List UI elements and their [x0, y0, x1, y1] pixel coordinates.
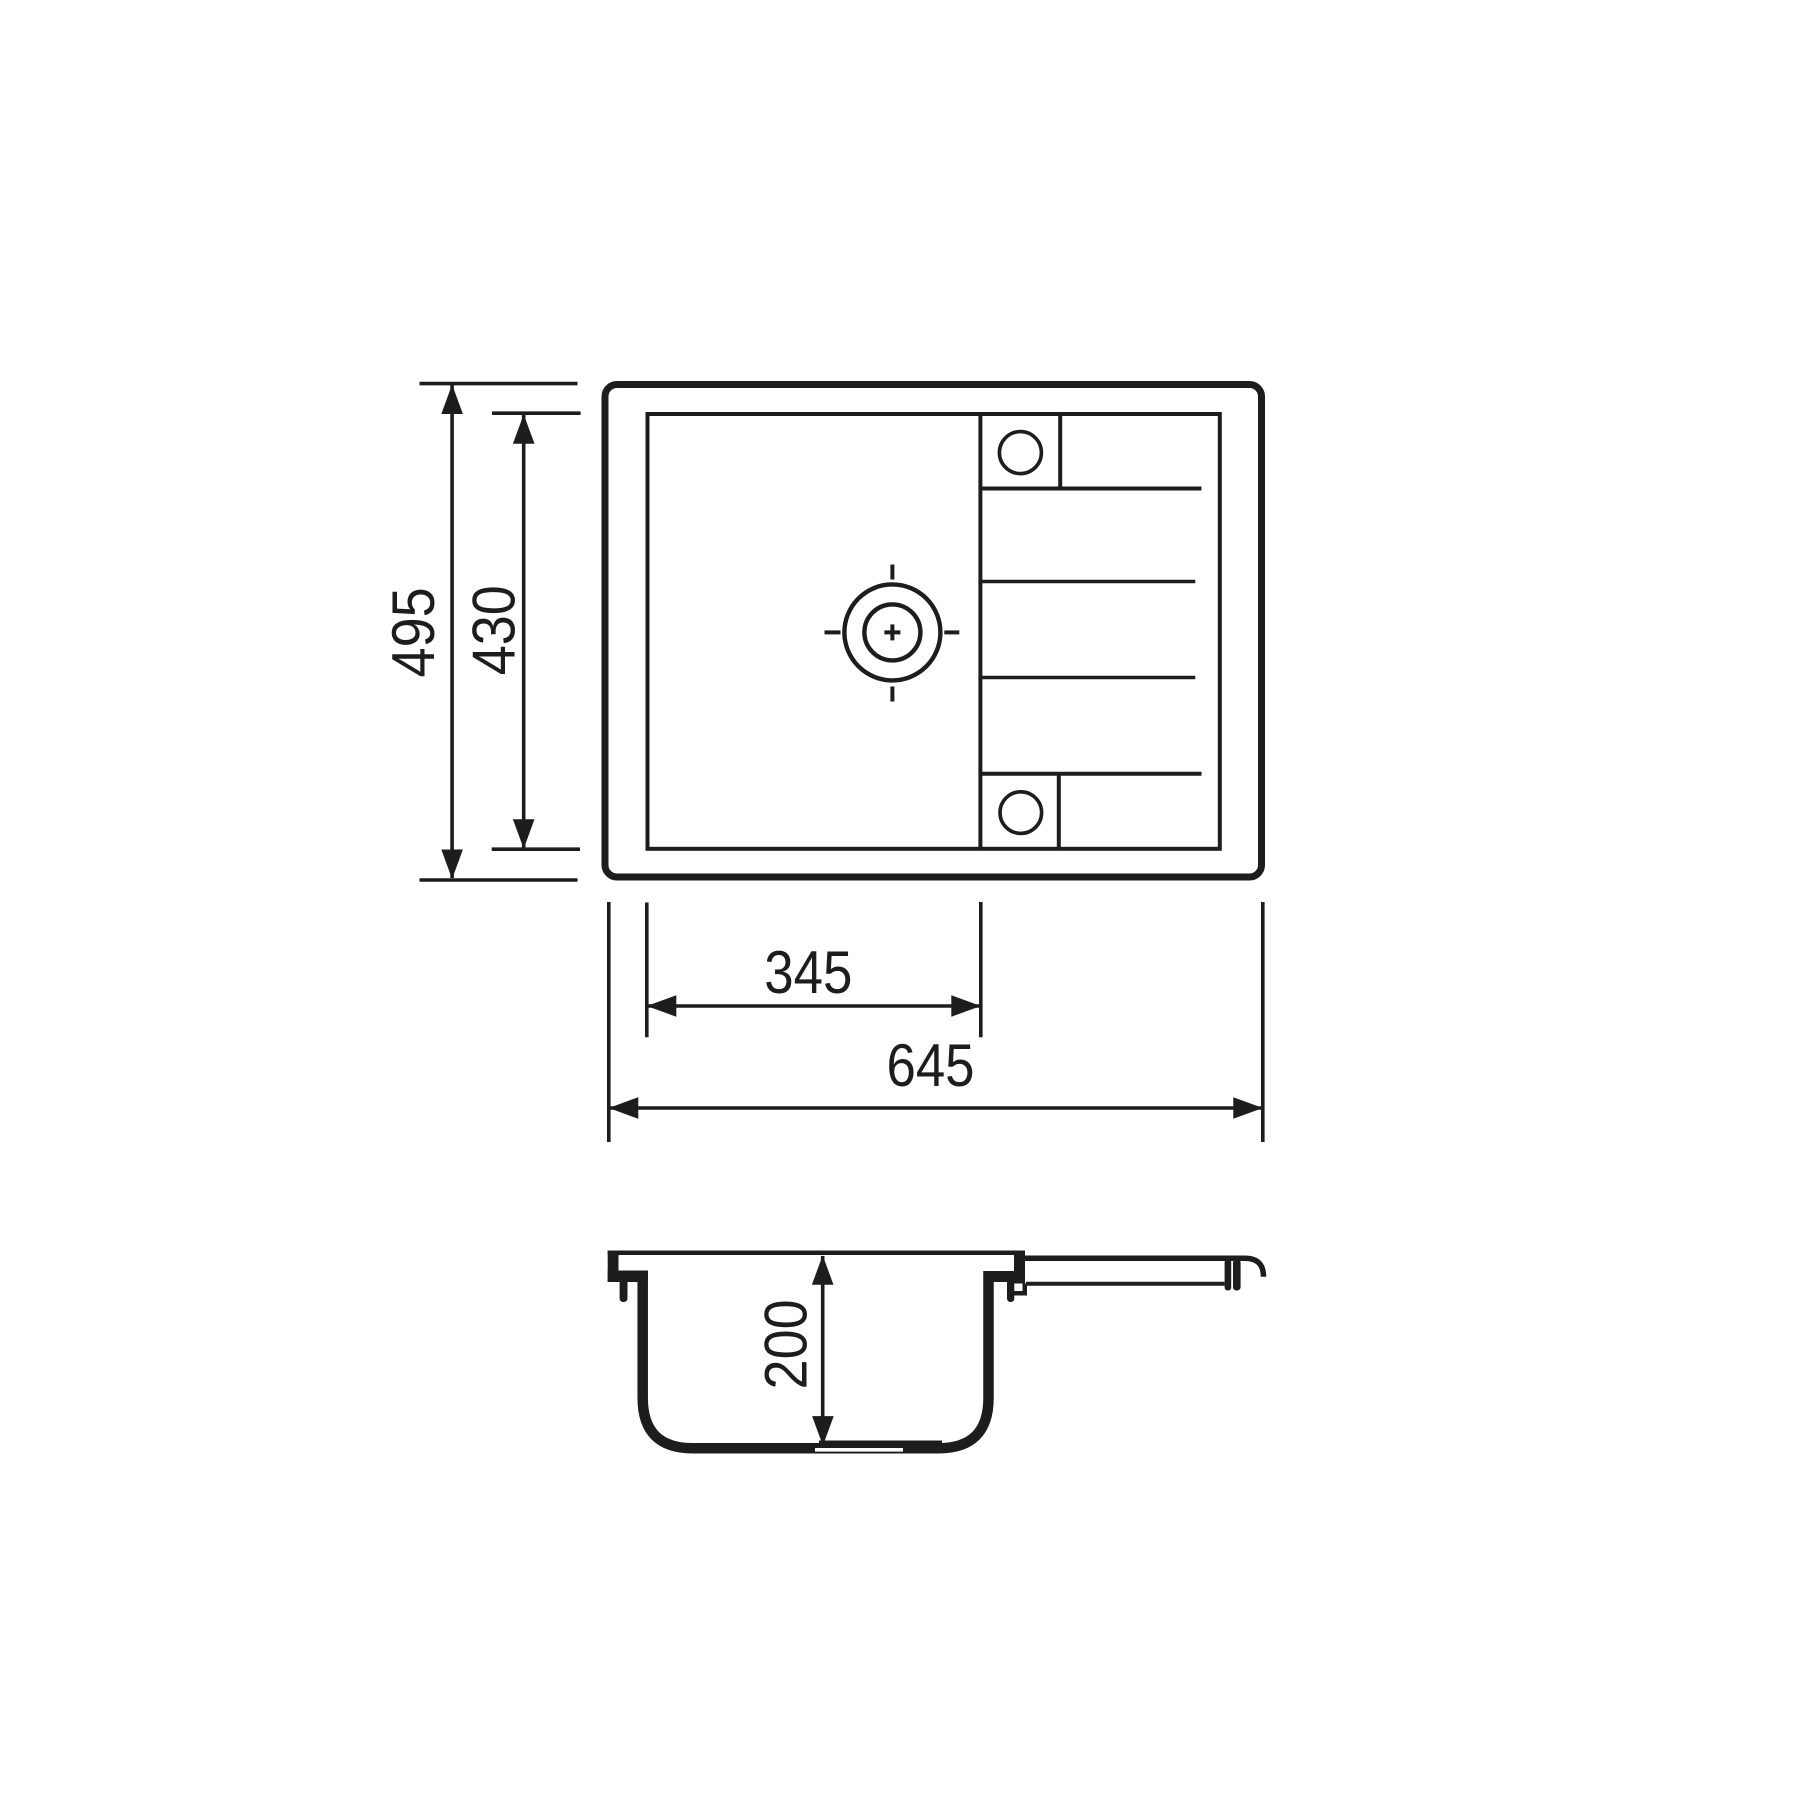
- svg-text:495: 495: [380, 587, 447, 677]
- svg-text:430: 430: [461, 585, 528, 675]
- svg-text:200: 200: [753, 1299, 820, 1389]
- svg-text:345: 345: [764, 939, 852, 1006]
- svg-text:645: 645: [886, 1032, 974, 1099]
